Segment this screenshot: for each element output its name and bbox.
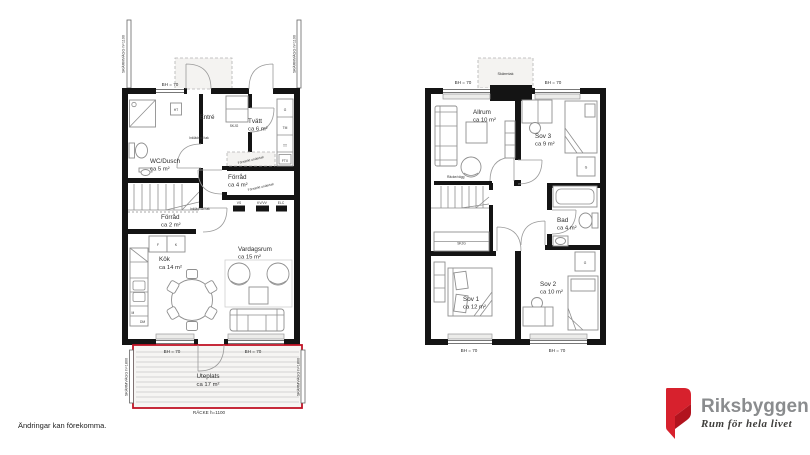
disclaimer-text: Ändringar kan förekomma. — [18, 421, 106, 430]
plan1-fridge-freezer: F K — [149, 236, 185, 252]
g-label-tvatt: G — [284, 108, 287, 112]
g-label-sov3: G — [585, 166, 588, 170]
room-label-kok: Kök — [159, 256, 171, 263]
f-label: F — [157, 243, 159, 247]
room-area-kok: ca 14 m² — [159, 265, 182, 271]
skjg-label-plan2: SKJG — [457, 242, 466, 246]
plan1-hat-shelf: HT — [171, 103, 182, 115]
inkladnad-label-2: Inklädnad tak — [190, 207, 210, 211]
terrace-screen-label-right: SKÄRMVÄGG h=1800 — [297, 358, 301, 396]
bh70-p2-bottom-right: BH = 70 — [549, 348, 566, 353]
room-label-forrad2: Förråd — [161, 213, 180, 221]
room-area-forrad4: ca 4 m² — [228, 183, 248, 189]
plan1-dining-set — [166, 270, 217, 331]
skarmtak-label: Skärmtak — [497, 72, 513, 76]
room-label-sov1: Sov 1 — [463, 296, 480, 303]
room-area-sov3: ca 9 m² — [535, 142, 555, 148]
m-label: M — [132, 311, 135, 315]
inkladnad-label-1: Inklädnad tak — [189, 136, 209, 140]
room-label-entre: Entré — [199, 114, 215, 121]
plan1-stairs — [128, 184, 199, 212]
ht-label: HT — [174, 108, 178, 112]
room-area-sov2: ca 10 m² — [540, 290, 563, 296]
bh70-p1-top: BH = 70 — [162, 82, 179, 87]
plan1-interior-doors — [177, 108, 274, 371]
room-label-sov2: Sov 2 — [540, 281, 557, 288]
room-label-bad: Bad — [557, 217, 569, 224]
plan2-sov3-furniture: G — [522, 100, 597, 176]
kvvv-label: KV/VV — [257, 201, 268, 205]
vs-label: VS — [237, 201, 242, 205]
room-area-sov1: ca 12 m² — [463, 305, 486, 311]
room-area-allrum: ca 10 m² — [473, 118, 496, 124]
tm-label: TM — [283, 126, 288, 130]
room-area-bad: ca 4 m² — [557, 226, 577, 232]
plan1-ground-floor: SKÄRMVÄGG h=1100 SKÄRMVÄGG h=1100 — [122, 20, 306, 415]
plan1-terrace: SKÄRMVÄGG h=1800 SKÄRMVÄGG h=1800 Utepla… — [125, 345, 306, 415]
plan1-tvatt-entry-door — [249, 64, 273, 89]
racke-vagg-label: Räcke/vägg — [447, 175, 465, 179]
room-label-sov3: Sov 3 — [535, 133, 552, 140]
ftx-label: FTX — [282, 159, 289, 163]
room-area-vardagsrum: ca 15 m² — [238, 255, 261, 261]
plan2-stairs: Räcke/vägg — [431, 175, 489, 208]
room-label-uteplats: Uteplats — [196, 373, 219, 380]
room-area-wc: ca 5 m² — [150, 167, 170, 173]
skjg-label-plan1: SKJG — [230, 124, 239, 128]
bh70-p1-bottom-right: BH = 70 — [245, 349, 262, 354]
racke-label: RÄCKE h=1100 — [193, 409, 226, 415]
room-area-forrad2: ca 2 m² — [161, 223, 181, 229]
screenwall-label-right: SKÄRMVÄGG h=1100 — [293, 35, 297, 73]
bh70-p2-top-left: BH = 70 — [455, 80, 472, 85]
tt-label: TT — [283, 144, 287, 148]
bh70-p2-bottom-left: BH = 70 — [461, 348, 478, 353]
logo-tagline: Rum för hela livet — [701, 418, 809, 430]
plan2-upper-floor: Skärmtak — [425, 58, 606, 353]
room-label-allrum: Allrum — [473, 109, 491, 116]
bh70-p1-bottom-left: BH = 70 — [164, 349, 181, 354]
plan1-kitchen-counter: M DM — [130, 248, 148, 326]
room-label-forrad4: Förråd — [228, 173, 247, 181]
plan1-entre-wardrobe: SKJG — [226, 96, 248, 128]
plan1-canopy — [175, 58, 232, 89]
elc-label: ELC — [278, 201, 285, 205]
bh70-p2-top-right: BH = 70 — [545, 80, 562, 85]
dm-label: DM — [140, 320, 145, 324]
screenwall-label-left: SKÄRMVÄGG h=1100 — [122, 35, 126, 73]
g-label-sov2: G — [584, 261, 587, 265]
riksbyggen-logo-icon — [664, 387, 694, 441]
logo-brand: Riksbyggen — [701, 397, 809, 416]
forsankt-label-2: Försänkt undertak — [247, 182, 274, 192]
room-label-tvatt: Tvätt — [248, 118, 262, 125]
terrace-screen-label-left: SKÄRMVÄGG h=1800 — [125, 358, 129, 396]
plan1-appliance-column: G TM TT FTX — [277, 99, 293, 166]
room-area-uteplats: ca 17 m² — [197, 382, 220, 388]
plan1-living-furniture — [225, 260, 292, 331]
logo-text: Riksbyggen Rum för hela livet — [701, 387, 809, 430]
room-area-tvatt: ca 6 m² — [248, 127, 268, 133]
plan2-skjg-wardrobe: SKJG — [434, 232, 489, 251]
room-label-vardagsrum: Vardagsrum — [238, 246, 272, 253]
riksbyggen-logo: Riksbyggen Rum för hela livet — [664, 387, 809, 441]
room-label-wc: WC/Dusch — [150, 158, 181, 165]
